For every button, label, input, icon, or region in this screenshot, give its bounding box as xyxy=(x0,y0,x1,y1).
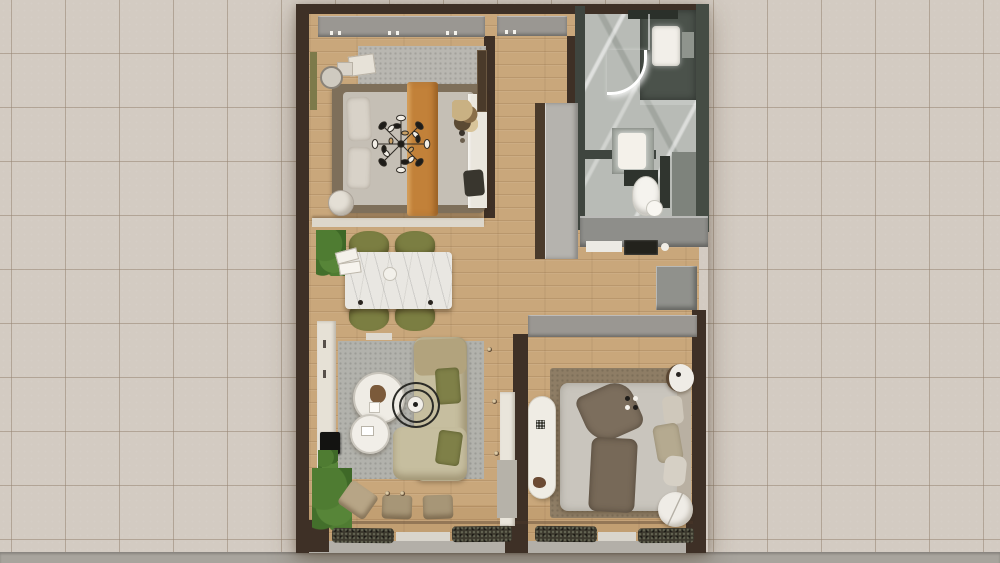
bathroom-top-cabinet xyxy=(628,10,678,19)
floor-light-2 xyxy=(492,399,497,404)
bedroom2-decor-dot-4 xyxy=(633,405,638,410)
wall-right-bathroom xyxy=(696,4,709,232)
balcony-sill-2 xyxy=(598,532,636,541)
toilet-lid xyxy=(646,200,663,217)
kitchen-sink xyxy=(586,241,622,252)
bedroom1-desk-decor-1 xyxy=(459,130,465,136)
ottoman-2 xyxy=(423,494,454,519)
concrete-strip xyxy=(0,552,1000,563)
wc-partition-gray xyxy=(672,152,696,220)
wc-partition-dark xyxy=(660,156,670,208)
bedroom2-decor-dot-1 xyxy=(625,396,630,401)
balcony-hedge-2 xyxy=(452,526,512,543)
floor-light-3 xyxy=(494,451,499,456)
dining-plate xyxy=(383,267,397,281)
washbasin xyxy=(618,133,646,169)
bedroom2-wardrobe-strip xyxy=(528,315,697,337)
hall-storage-box xyxy=(656,266,697,310)
bedroom2-closet-gray xyxy=(497,460,517,518)
floor-light-5 xyxy=(400,491,405,496)
cooktop xyxy=(624,240,658,255)
ottoman-1 xyxy=(382,494,413,519)
bedroom1-desk-decor-2 xyxy=(460,138,465,143)
nightstand-top-decor xyxy=(676,372,681,377)
tv-console-handle-2 xyxy=(323,370,326,378)
coffee-table-card xyxy=(369,402,380,413)
bedroom1-curtain xyxy=(310,52,317,110)
bench-decor-blob xyxy=(533,477,546,488)
bedroom2-decor-dot-2 xyxy=(633,396,638,401)
bedroom1-desk-chair xyxy=(463,169,485,197)
bedroom2-nightstand-bottom xyxy=(658,492,693,527)
bedroom2-throw-lower xyxy=(588,437,638,513)
bedroom1-dark-wardrobe xyxy=(477,50,487,112)
bench-decor-mark xyxy=(536,420,545,429)
balcony-sill-1 xyxy=(396,532,450,541)
small-table-book xyxy=(361,426,374,436)
floor-light-4 xyxy=(385,491,390,496)
floor-light-1 xyxy=(487,347,492,352)
bathroom-shelf xyxy=(682,32,694,58)
living-door-track xyxy=(366,333,392,340)
arc-lamp-bulb xyxy=(413,402,418,407)
floor-plan-render xyxy=(0,0,1000,563)
bedroom2-nightstand-top xyxy=(666,364,694,392)
sofa-cushion-2 xyxy=(435,429,463,466)
balcony-hedge-1 xyxy=(332,528,394,544)
shower-glass xyxy=(648,14,650,50)
sputnik-chandelier xyxy=(365,108,437,180)
bedroom1-wardrobe-handles xyxy=(330,31,480,35)
wall-left xyxy=(296,6,309,553)
tall-cabinet-edge xyxy=(535,103,545,259)
threshold-bedroom1-dining xyxy=(312,218,484,227)
coffee-table-decor xyxy=(370,385,386,403)
bedroom1-reading-chair xyxy=(320,66,343,89)
tall-cabinet xyxy=(545,103,578,259)
bedroom2-pillow-3 xyxy=(662,455,687,487)
bathroom-sink xyxy=(652,26,680,66)
balcony-hedge-3 xyxy=(535,526,597,543)
bedroom2-decor-dot-3 xyxy=(625,405,630,410)
dining-table-mark-1 xyxy=(358,300,363,305)
counter-knob xyxy=(661,243,669,251)
entry-wardrobe-handles xyxy=(505,30,560,34)
tv-console-handle-1 xyxy=(323,340,326,348)
balcony-hedge-4 xyxy=(638,528,694,543)
bedroom1-stool xyxy=(328,190,354,216)
dining-table-mark-2 xyxy=(428,300,433,305)
bedroom2-pillow-1 xyxy=(662,395,685,425)
bedroom1-dried-plant xyxy=(452,100,478,132)
